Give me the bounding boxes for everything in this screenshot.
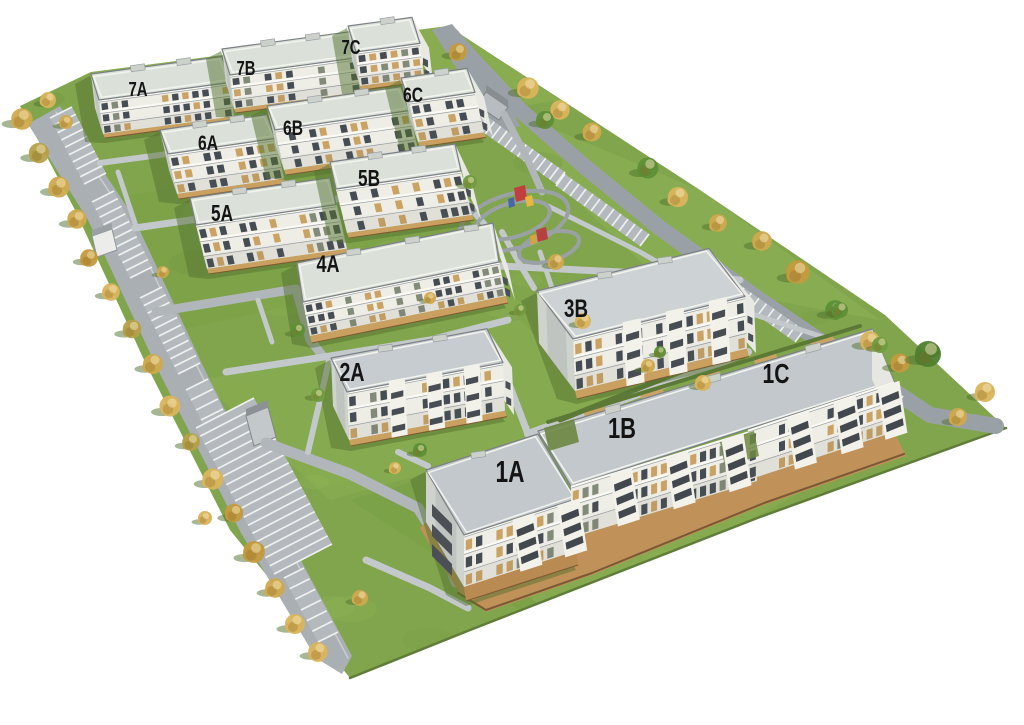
svg-text:6C: 6C [403, 84, 423, 107]
svg-text:2A: 2A [340, 357, 365, 387]
svg-text:1C: 1C [763, 358, 790, 389]
svg-text:6B: 6B [283, 117, 303, 140]
svg-text:1A: 1A [496, 454, 525, 489]
svg-text:1B: 1B [608, 413, 636, 445]
svg-text:7A: 7A [129, 79, 148, 101]
svg-text:4A: 4A [317, 251, 340, 278]
svg-text:7B: 7B [237, 58, 256, 80]
svg-text:6A: 6A [198, 132, 218, 155]
svg-text:7C: 7C [342, 37, 361, 59]
svg-text:3B: 3B [564, 295, 588, 323]
svg-text:5A: 5A [211, 200, 233, 226]
svg-text:5B: 5B [358, 165, 380, 191]
